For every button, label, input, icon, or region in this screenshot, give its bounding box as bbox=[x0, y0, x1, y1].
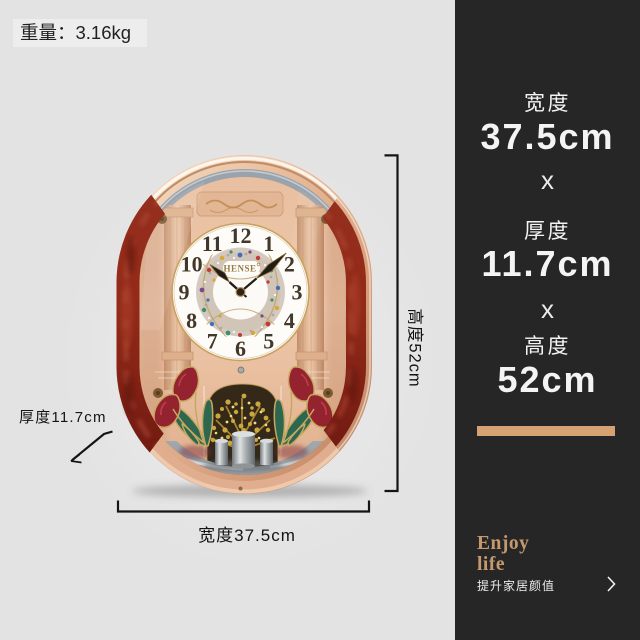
svg-text:7: 7 bbox=[207, 329, 218, 354]
svg-text:3: 3 bbox=[292, 280, 303, 305]
svg-text:6: 6 bbox=[235, 336, 246, 361]
svg-text:1: 1 bbox=[263, 231, 274, 256]
svg-text:10: 10 bbox=[181, 252, 203, 277]
svg-text:4: 4 bbox=[284, 308, 295, 333]
svg-text:9: 9 bbox=[179, 280, 190, 305]
svg-text:11: 11 bbox=[202, 231, 223, 256]
svg-text:HENSE: HENSE bbox=[223, 264, 256, 274]
svg-text:8: 8 bbox=[186, 308, 197, 333]
svg-text:5: 5 bbox=[263, 329, 274, 354]
svg-text:2: 2 bbox=[284, 252, 295, 277]
svg-text:12: 12 bbox=[230, 223, 252, 248]
